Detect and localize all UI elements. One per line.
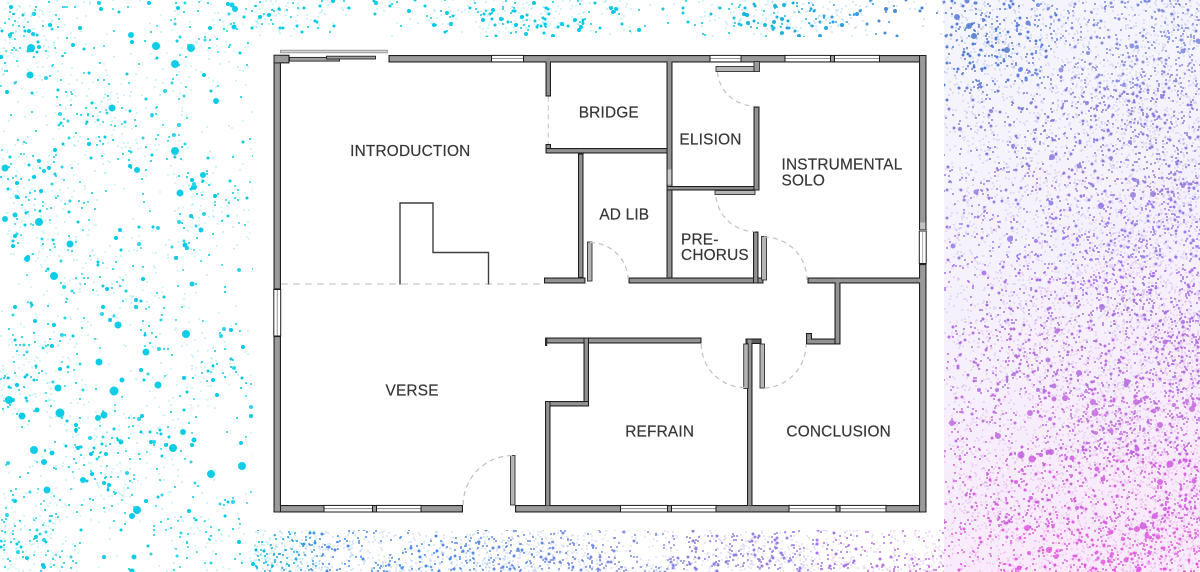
svg-text:CONCLUSION: CONCLUSION [786,424,891,441]
svg-text:SOLO: SOLO [782,172,826,189]
svg-text:AD LIB: AD LIB [599,207,649,224]
svg-text:ELISION: ELISION [679,132,741,149]
svg-text:INTRODUCTION: INTRODUCTION [350,143,470,160]
svg-text:CHORUS: CHORUS [681,247,749,264]
svg-text:VERSE: VERSE [386,382,439,399]
svg-text:INSTRUMENTAL: INSTRUMENTAL [782,157,903,174]
svg-text:REFRAIN: REFRAIN [625,424,694,441]
svg-text:PRE-: PRE- [681,232,719,249]
svg-text:BRIDGE: BRIDGE [579,104,639,121]
